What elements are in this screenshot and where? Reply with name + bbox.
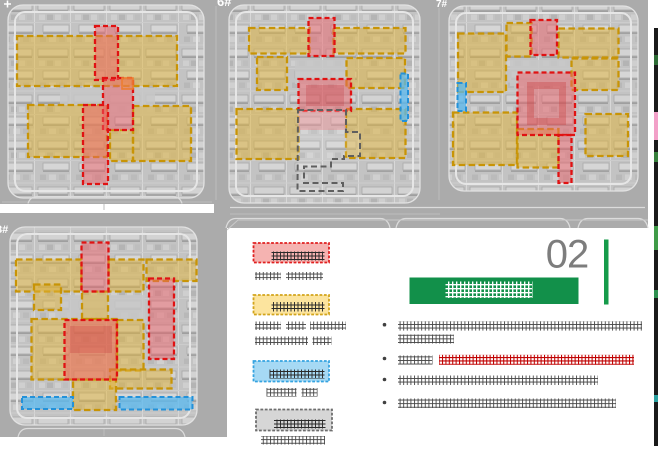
svg-text:02: 02	[546, 233, 589, 277]
svg-text:8#: 8#	[0, 224, 8, 236]
svg-text:6#: 6#	[217, 0, 232, 9]
svg-text:7#: 7#	[436, 0, 448, 10]
